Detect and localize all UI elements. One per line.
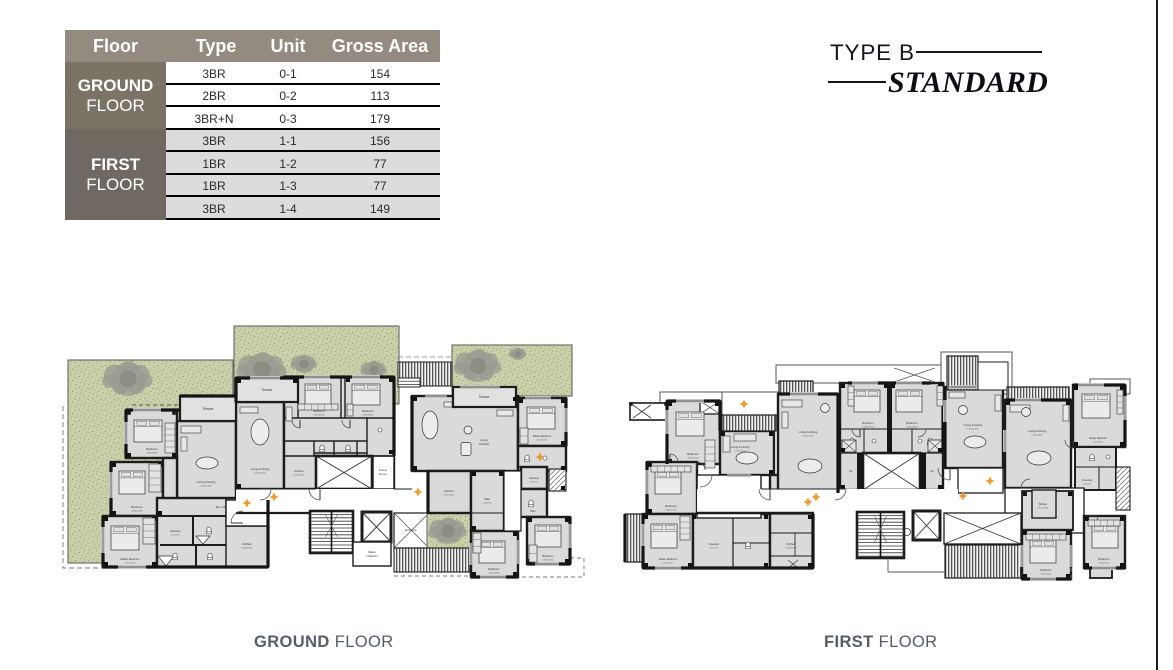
svg-text:6.05x4.50m: 6.05x4.50m [734,450,746,452]
svg-text:3.60x4.05m: 3.60x4.05m [906,426,918,428]
svg-text:Terrace: Terrace [262,388,273,392]
svg-text:Master Bedroom: Master Bedroom [659,558,677,561]
svg-text:3.60x4.05m: 3.60x4.05m [1098,562,1110,564]
svg-text:6.05x4.50m: 6.05x4.50m [200,485,212,487]
svg-text:Bath: Bath [531,510,537,513]
svg-text:Bedroom: Bedroom [543,554,555,558]
svg-text:Bedroom: Bedroom [863,421,875,425]
svg-text:6.05x4.50m: 6.05x4.50m [254,472,266,474]
svg-text:Terrace: Terrace [479,395,490,399]
svg-text:Bedroom: Bedroom [907,421,919,425]
svg-text:Master Bedroom: Master Bedroom [120,557,139,561]
svg-text:3.60x4.05m: 3.60x4.05m [542,559,554,561]
svg-text:6.05x4.50m: 6.05x4.50m [967,428,979,430]
svg-text:collection: collection [366,554,378,558]
svg-text:Kitchen: Kitchen [444,489,454,493]
svg-text:Master Bedroom: Master Bedroom [533,435,551,438]
svg-text:2.0x2.4m: 2.0x2.4m [530,481,538,483]
svg-text:Dressing: Dressing [1082,479,1092,482]
svg-text:Bedroom: Bedroom [362,409,374,413]
svg-text:3.60x4.05m: 3.60x4.05m [313,414,325,416]
svg-text:Living & Dining: Living & Dining [964,423,983,427]
svg-text:3.10x3.30m: 3.10x3.30m [785,547,797,549]
svg-text:2.0x2.4m: 2.0x2.4m [171,534,180,536]
svg-text:4.20x4.05m: 4.20x4.05m [1093,441,1103,443]
svg-text:3.60x4.05m: 3.60x4.05m [862,426,874,428]
svg-text:Bedroom: Bedroom [1099,557,1111,561]
svg-text:Bedroom: Bedroom [131,505,143,509]
svg-text:3.10x3.30m: 3.10x3.30m [1038,507,1049,509]
svg-text:Dressing: Dressing [170,529,181,533]
svg-text:Living & Dining: Living & Dining [1028,429,1047,433]
svg-text:Living & Dining: Living & Dining [799,430,818,434]
svg-text:6.05x4.50m: 6.05x4.50m [802,435,814,437]
svg-text:4.20x4.05m: 4.20x4.05m [537,439,548,441]
svg-text:Master Bedroom: Master Bedroom [1089,437,1107,440]
svg-text:Bedroom: Bedroom [1041,568,1053,572]
svg-text:2.2x3.0m: 2.2x3.0m [483,502,492,504]
svg-text:Maid: Maid [484,497,490,501]
svg-text:2.0x2.4m: 2.0x2.4m [710,547,719,549]
svg-text:3.60x4.05m: 3.60x4.05m [1040,573,1052,575]
svg-text:3.60x4.05m: 3.60x4.05m [146,452,158,454]
svg-text:Kitchen: Kitchen [787,542,796,546]
svg-text:Living & Dining: Living & Dining [197,480,216,484]
svg-text:Bedroom: Bedroom [687,452,699,456]
svg-text:Bedroom: Bedroom [146,447,158,451]
svg-text:3.60x4.05m: 3.60x4.05m [665,509,677,511]
svg-text:3.10x3.30m: 3.10x3.30m [443,494,455,496]
svg-text:Kitchen: Kitchen [1039,503,1048,506]
svg-text:3.10x3.30m: 3.10x3.30m [241,547,253,549]
svg-text:Kitchen: Kitchen [242,542,252,546]
svg-text:3.60x4.05m: 3.60x4.05m [362,414,374,416]
svg-text:3.60x4.05m: 3.60x4.05m [488,572,500,574]
svg-text:Living & Dining: Living & Dining [731,445,750,449]
svg-text:3.60x4.05m: 3.60x4.05m [687,457,699,459]
svg-text:Entrance: Entrance [405,528,417,532]
svg-text:Kit.: Kit. [849,470,853,473]
svg-text:Dressing: Dressing [709,543,719,546]
svg-text:Waste: Waste [368,550,376,554]
svg-text:& Dining: & Dining [479,442,489,446]
svg-text:Terrace: Terrace [203,407,214,411]
svg-text:4.20x4.05m: 4.20x4.05m [125,562,136,564]
svg-text:Kit.: Kit. [930,470,934,473]
svg-text:Living: Living [480,438,488,442]
svg-text:Kitchen: Kitchen [294,469,304,473]
svg-text:6.05x4.50m: 6.05x4.50m [1031,434,1043,436]
svg-text:Dressing: Dressing [529,477,539,480]
svg-text:Room: Room [379,472,387,476]
svg-text:4.20x4.05m: 4.20x4.05m [663,562,674,564]
svg-text:3.10x3.30m: 3.10x3.30m [293,474,305,476]
svg-text:Bedroom: Bedroom [665,504,677,508]
svg-text:2.0x2.4m: 2.0x2.4m [1083,483,1091,485]
svg-text:3.60x4.05m: 3.60x4.05m [131,510,143,512]
svg-text:Living & Dining: Living & Dining [251,467,270,471]
svg-text:Bedroom: Bedroom [489,567,501,571]
